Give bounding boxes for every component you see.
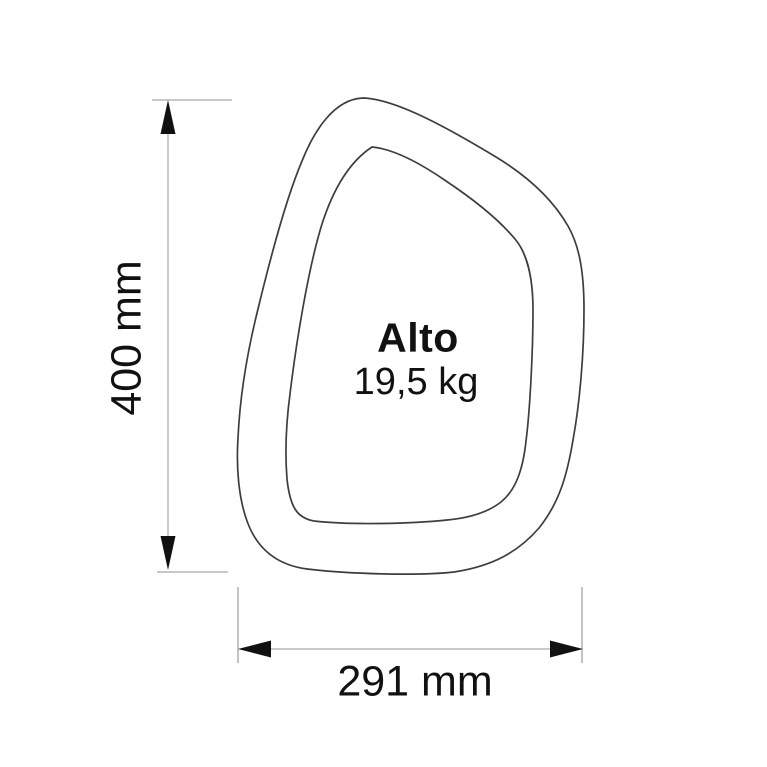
- height-dimension: [152, 100, 232, 572]
- arrow-left-icon: [238, 641, 271, 658]
- arrow-right-icon: [550, 641, 583, 658]
- product-name: Alto: [377, 318, 459, 359]
- width-dimension: [238, 587, 583, 663]
- arrow-down-icon: [161, 536, 176, 570]
- height-dimension-label: 400 mm: [106, 260, 149, 415]
- arrow-up-icon: [161, 100, 176, 134]
- width-dimension-label: 291 mm: [337, 661, 492, 704]
- product-weight: 19,5 kg: [354, 363, 479, 401]
- dimension-diagram: 400 mm 291 mm Alto 19,5 kg: [0, 0, 767, 767]
